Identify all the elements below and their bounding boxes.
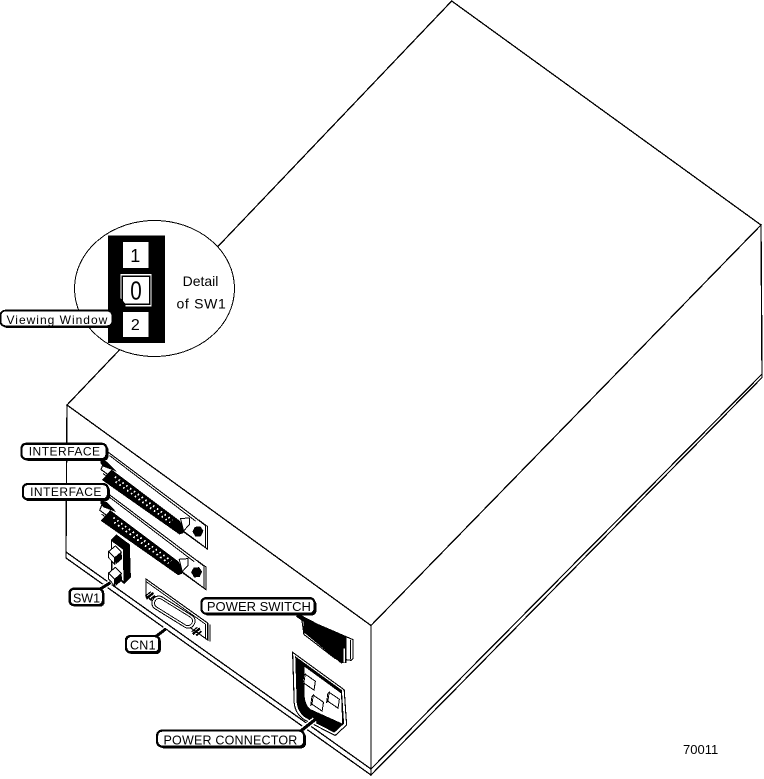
svg-text:CN1: CN1 xyxy=(130,639,156,653)
svg-text:70011: 70011 xyxy=(683,742,718,757)
svg-text:Viewing Window: Viewing Window xyxy=(7,313,109,327)
svg-text:SW1: SW1 xyxy=(73,591,100,605)
svg-text:INTERFACE: INTERFACE xyxy=(30,485,102,499)
svg-text:INTERFACE: INTERFACE xyxy=(29,445,101,459)
svg-text:of SW1: of SW1 xyxy=(176,296,226,312)
svg-text:POWER SWITCH: POWER SWITCH xyxy=(207,599,311,614)
svg-text:2: 2 xyxy=(131,317,140,334)
svg-text:Detail: Detail xyxy=(183,273,219,289)
svg-text:1: 1 xyxy=(130,246,140,266)
svg-text:POWER CONNECTOR: POWER CONNECTOR xyxy=(164,733,298,747)
svg-text:0: 0 xyxy=(130,276,142,306)
